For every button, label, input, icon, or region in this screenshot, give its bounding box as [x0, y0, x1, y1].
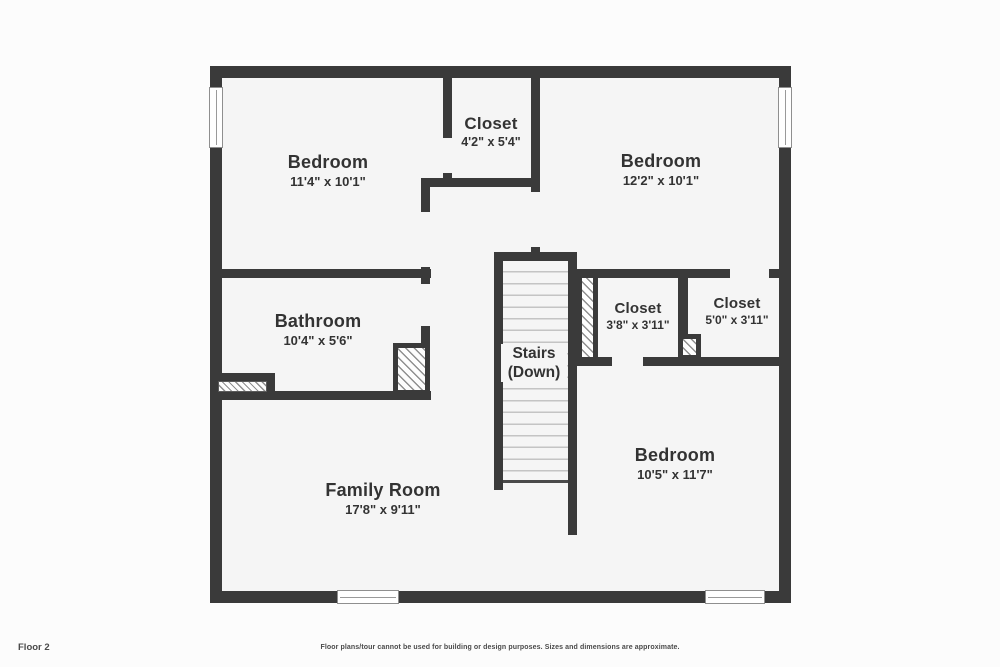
room-dims: 10'4" x 5'6" [228, 332, 408, 349]
wall-segment [421, 278, 430, 284]
wall-segment [421, 187, 430, 212]
wall-segment [210, 591, 791, 603]
wall-segment [494, 252, 577, 261]
room-dims: 4'2" x 5'4" [441, 134, 541, 151]
wall-segment [210, 66, 791, 78]
wall-segment [568, 252, 577, 535]
shower [393, 343, 430, 395]
room-dims: (Down) [501, 363, 567, 382]
disclaimer-text: Floor plans/tour cannot be used for buil… [0, 644, 1000, 651]
window-symbol [209, 87, 223, 148]
room-dims: 10'5" x 11'7" [585, 466, 765, 483]
room-label-closet-top: Closet 4'2" x 5'4" [441, 114, 541, 151]
room-label-bathroom: Bathroom 10'4" x 5'6" [228, 311, 408, 349]
room-name: Bedroom [238, 152, 418, 172]
room-name: Family Room [283, 480, 483, 500]
wall-segment [210, 269, 431, 278]
room-name: Closet [441, 114, 541, 133]
wall-segment [769, 269, 791, 278]
room-label-bedroom-top-left: Bedroom 11'4" x 10'1" [238, 152, 418, 190]
room-label-closet-right: Closet 5'0" x 3'11" [677, 295, 797, 328]
floor-plan: Bedroom 11'4" x 10'1" Closet 4'2" x 5'4"… [0, 0, 1000, 667]
bathroom-vanity [218, 381, 267, 392]
room-name: Stairs [501, 344, 567, 363]
room-dims: 12'2" x 10'1" [571, 172, 751, 189]
stair-bottom-edge [503, 480, 568, 483]
room-name: Bathroom [228, 311, 408, 331]
window-symbol [778, 87, 792, 148]
room-name: Bedroom [571, 151, 751, 171]
wall-segment [568, 269, 730, 278]
wall-segment [421, 178, 540, 187]
wall-segment [643, 357, 791, 366]
room-dims: 11'4" x 10'1" [238, 173, 418, 190]
wall-segment [266, 373, 275, 400]
room-name: Bedroom [585, 445, 765, 465]
window-symbol [337, 590, 399, 604]
room-label-bedroom-bottom-right: Bedroom 10'5" x 11'7" [585, 445, 765, 483]
room-label-stairs: Stairs (Down) [501, 344, 567, 382]
window-symbol [705, 590, 765, 604]
room-label-family-room: Family Room 17'8" x 9'11" [283, 480, 483, 518]
room-dims: 17'8" x 9'11" [283, 501, 483, 518]
room-dims: 5'0" x 3'11" [677, 313, 797, 328]
wall-segment [568, 357, 612, 366]
room-name: Closet [677, 295, 797, 312]
room-label-bedroom-top-right: Bedroom 12'2" x 10'1" [571, 151, 751, 189]
